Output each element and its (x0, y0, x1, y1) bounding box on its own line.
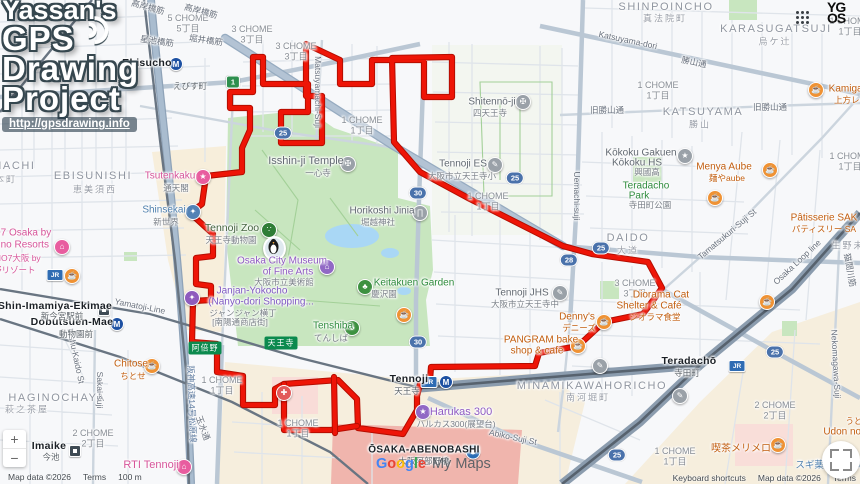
google-logo[interactable]: Google (376, 456, 426, 472)
map-label: Kamigat (829, 84, 860, 95)
map-label: Pâtisserie SAK (791, 213, 858, 224)
map-label: 天王寺 (394, 385, 420, 397)
map-label: 南河堀町 (566, 391, 610, 404)
map-label: 1丁目 (476, 200, 499, 213)
map-label: KATSUYAMA (663, 106, 744, 118)
map-label: 星野リゾート (0, 264, 36, 276)
map-label: Hoshino Resorts (0, 240, 49, 251)
map-label: 動物園前 (59, 328, 93, 340)
map-label: ONMACHI (0, 160, 36, 172)
map-label: Tennoji ES (439, 159, 487, 170)
map-label: 萩之茶屋 (5, 403, 49, 416)
map-label: Shitennō-ji (468, 97, 515, 108)
map-label: 慶沢園 (371, 288, 397, 300)
label-harukas300: Harukas 300 (430, 406, 492, 418)
map-label: 1丁目 (663, 455, 686, 468)
map-label: 1丁目 (838, 25, 860, 38)
map-label: Uemachi-suji (572, 171, 582, 220)
map-label: 寺田町公園 (629, 199, 672, 211)
map-data-label: Map data ©2026 (8, 472, 71, 482)
map-label: Menya Aube (696, 162, 752, 173)
map-label: 勝山通 (680, 53, 707, 70)
map-label: [南陽通商店街] (212, 316, 268, 328)
map-label: 天王寺動物園 (205, 234, 256, 246)
zoom-control[interactable]: + − (3, 430, 26, 467)
map-label: 堀井橋筋 (188, 32, 223, 49)
map-label: 1丁目 (838, 160, 860, 173)
label-dennys: Denny's (559, 312, 595, 323)
map-label: 一心寺 (305, 167, 331, 179)
logo-url[interactable]: http://gpsdrawing.info (2, 117, 137, 131)
map-label: 烏ケ辻 (758, 35, 791, 48)
map-label: KARASUGATSUJI (720, 23, 832, 35)
station-teradacho: Teradachō (661, 355, 716, 367)
map-label: 興國高 (634, 166, 660, 178)
map-label: うど (845, 415, 860, 427)
map-label: Diorama Cat (633, 290, 689, 301)
map-label: Isshin-ji Temple (268, 155, 344, 167)
map-label: パティスリー SA (792, 223, 856, 235)
map-label: 真法院町 (643, 12, 687, 25)
station-osaka-abenobashi: ŌSAKA-ABENOBASHI (368, 445, 479, 456)
map-label: Chitose (114, 359, 148, 370)
logo-line: Project (2, 84, 139, 114)
map-label: Udon noo (823, 427, 860, 438)
map-label: Osaka Loop line (771, 237, 823, 286)
zoom-out-button[interactable]: − (3, 449, 26, 467)
label-tsutenkaku: Tsutenkaku (145, 171, 196, 182)
map-label: 旧勝山通 (753, 101, 787, 113)
site-logo: Yassan's GPS Drawing Project http://gpsd… (2, 0, 139, 132)
map-label: Sakai-suji (95, 372, 105, 409)
map-label: 勝山 (689, 118, 711, 131)
map-label: えびす町 (173, 80, 207, 92)
map-label: 上方レイ (834, 94, 860, 106)
map-label: 3丁目 (240, 33, 263, 46)
map-label: shop & cafe (511, 346, 564, 357)
map-label: Katsuyama-dori (598, 29, 658, 51)
map-label: 1丁目 (646, 89, 669, 102)
map-label: 2丁目 (81, 437, 104, 450)
map-label: 2丁目 (763, 409, 786, 422)
map-label: 堀越神社 (361, 216, 395, 228)
map-label: Nekomagawa-Suji (829, 329, 843, 398)
map-label: 1丁目 (286, 427, 309, 440)
zoom-in-button[interactable]: + (3, 430, 26, 448)
map-label: てんしば (314, 332, 348, 344)
map-label: (Nanyo-dori Shopping... (208, 297, 314, 308)
map-label: 本町 (0, 173, 17, 186)
map-data-label: Map data ©2026 (758, 473, 821, 483)
map-label: ジオラマ食堂 (629, 311, 680, 323)
map-label: 麺やaube (709, 172, 745, 184)
map-label: 新今宮駅前 (41, 310, 84, 322)
map-label: 旧勝山通 (590, 104, 624, 116)
pan-control[interactable] (822, 441, 860, 479)
map-label: 3丁目 (284, 50, 307, 63)
google-watermark: Google My Maps (376, 456, 491, 472)
map-label: ちとせ (120, 370, 146, 382)
map-label: OMO7大阪 by (0, 252, 41, 264)
map-label: Tamatsukuri-Suji St (696, 207, 759, 262)
map-label: Matsuyamachi-Suji (313, 56, 323, 128)
map-label: Abiko-Suji St (488, 427, 538, 447)
label-shinsekai: Shinsekai (142, 205, 185, 216)
my-maps-label: My Maps (432, 456, 491, 472)
label-pangram: PANGRAM bake (504, 335, 578, 346)
yg-monogram-logo[interactable]: YG OS (827, 2, 845, 24)
map-label: 通天閣 (163, 182, 189, 194)
label-museum: Osaka City Museum (237, 256, 327, 267)
map-label: Yamatoji-Line (114, 296, 166, 316)
keyboard-shortcuts-link[interactable]: Keyboard shortcuts (673, 473, 746, 483)
map-label: 今池 (42, 451, 59, 463)
map-label: 新世界 (153, 216, 179, 228)
label-tennoji-zoo: Tennoji Zoo (205, 222, 259, 234)
map-label: Shelter & Café (616, 301, 681, 312)
map-label: Horikoshi Jinia (349, 206, 414, 217)
map-label: DAIDO (607, 232, 650, 244)
terms-link[interactable]: Terms (83, 472, 106, 482)
map-label: Tennoji JHS (495, 288, 548, 299)
map-label: ハルカス300(展望台) (416, 418, 495, 430)
map-label: 生野未 (831, 239, 860, 252)
map-label: 恵美須西 (73, 183, 117, 196)
map-label: EBISUNISHI (54, 170, 132, 182)
map-label: RTI Tennoji (123, 459, 178, 471)
map-label: 大阪市立天王寺小 (428, 170, 496, 182)
logo-line: Yassan's (2, 0, 139, 22)
map-label: 大道 (617, 244, 639, 257)
label-keitakuen: Keitakuen Garden (374, 278, 455, 289)
map-label: 大阪市立美術館 (254, 276, 314, 288)
station-tennoji: Tennoji (390, 373, 429, 385)
map-label: OMO7 Osaka by (0, 228, 51, 239)
map-label: Tenshiba (313, 321, 353, 332)
my-maps-viewport[interactable]: 阿倍野天王寺12525252825253030MMMJRJRJR☕☕☕☕☕☕☕☕… (0, 0, 860, 484)
map-label: 1丁目 (350, 124, 373, 137)
map-label: 寺田町 (674, 367, 700, 379)
map-label: 喫茶メリメロ (711, 440, 771, 455)
map-label: 四天王寺 (473, 107, 507, 119)
map-label: 猫間川筋 (841, 252, 859, 288)
map-label: 星池橋筋 (139, 33, 174, 50)
scale-label: 100 m (118, 472, 142, 482)
map-label: 大阪市立天王寺中 (491, 298, 559, 310)
map-label: 1丁目 (210, 384, 233, 397)
map-label: デニーズ (562, 322, 596, 334)
attribution-left: Map data ©2026 Terms 100 m (8, 472, 142, 482)
apps-grid-icon[interactable] (796, 11, 810, 25)
